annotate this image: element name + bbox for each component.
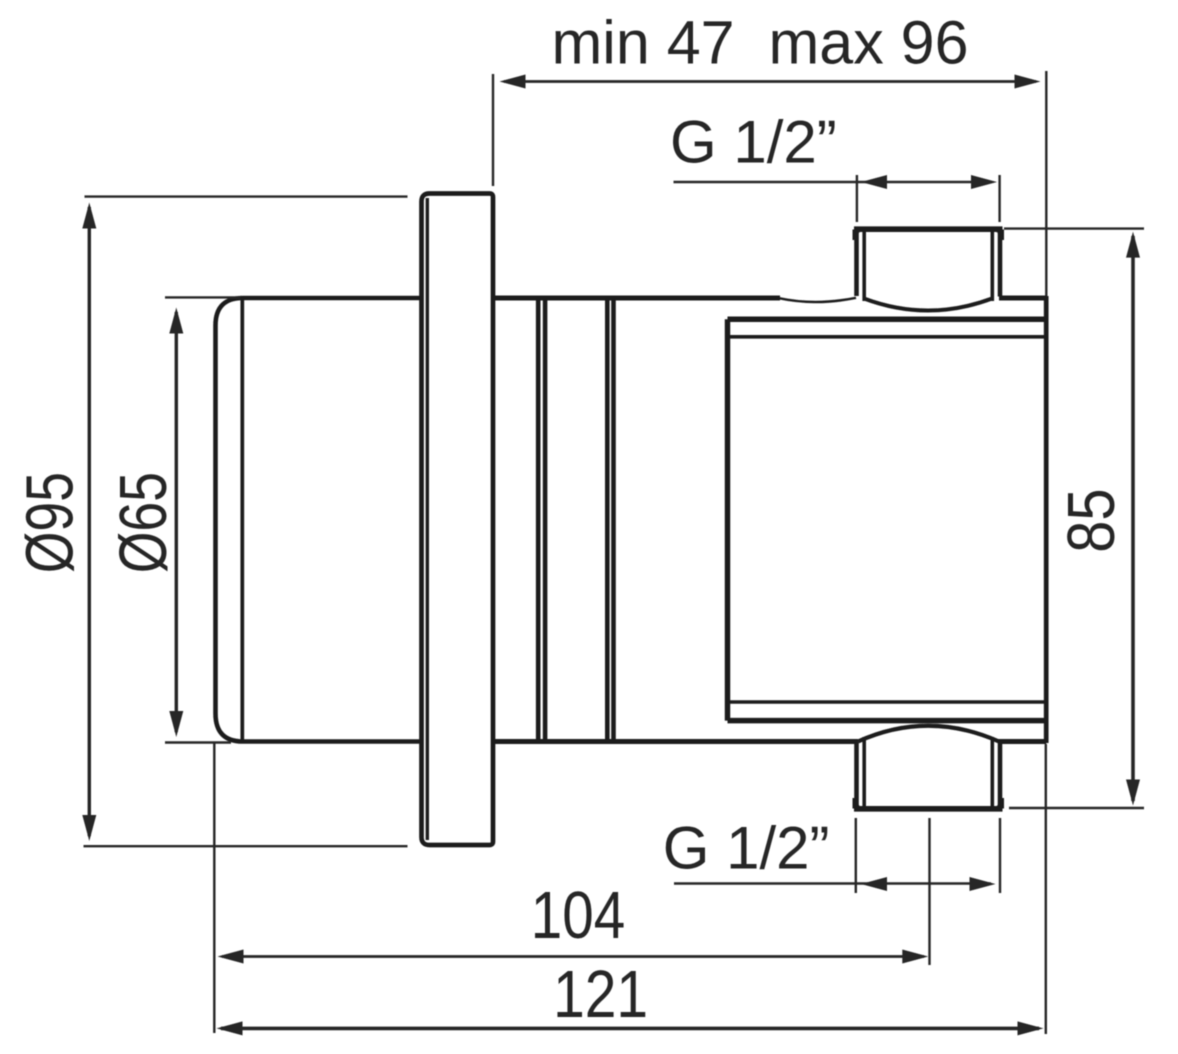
svg-text:Ø65: Ø65 xyxy=(105,472,180,573)
svg-text:min 47 max 96: min 47 max 96 xyxy=(551,9,968,77)
svg-text:Ø95: Ø95 xyxy=(12,472,87,573)
svg-text:85: 85 xyxy=(1055,488,1129,552)
svg-text:G 1/2”: G 1/2” xyxy=(670,109,837,176)
svg-text:104: 104 xyxy=(531,879,625,954)
svg-text:G 1/2”: G 1/2” xyxy=(663,815,830,882)
svg-text:121: 121 xyxy=(553,958,648,1032)
